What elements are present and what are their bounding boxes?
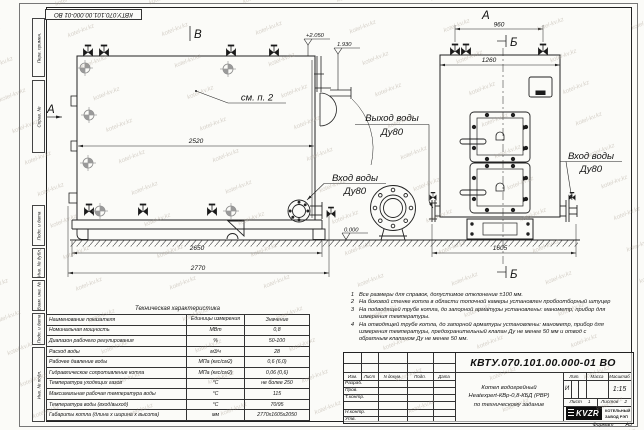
stamp-row-label: Пров.	[345, 387, 377, 394]
valve-icon	[539, 45, 548, 56]
dim-label: 1260	[482, 57, 497, 64]
note-number: 4	[346, 322, 359, 344]
control-panel	[529, 77, 552, 97]
dim-2520: 2520	[78, 138, 314, 146]
boiler-body-front	[440, 55, 560, 217]
note-item: 4 На отводящей трубе котла, до запорной …	[346, 322, 613, 344]
elevation-marks: +2.050 1.930 0.000	[304, 33, 368, 240]
param-name: Рабочее давление воды	[47, 357, 187, 368]
elevation-label: +2.050	[306, 33, 325, 39]
drain-valve-icon	[208, 205, 217, 216]
product-title-line: Котел водогрейный	[481, 384, 536, 392]
tech-table: Наименование показателя Единицы измерени…	[46, 314, 310, 421]
logo-cell: KVZR КОТЕЛЬНЫЙ ЗАВОД РЭП	[563, 406, 634, 421]
param-value: 115	[245, 389, 310, 400]
param-name: Гидравлическое сопротивление котла	[47, 367, 187, 378]
callout-label: Ду80	[343, 186, 367, 197]
callout-label: см. п. 2	[241, 93, 274, 104]
tech-table-header-row: Наименование показателя Единицы измерени…	[47, 315, 310, 326]
valve-icon	[462, 45, 471, 56]
param-name: Номинальная мощность	[47, 325, 187, 336]
door-swing-arc	[352, 99, 373, 165]
door-handle	[460, 139, 486, 144]
tap-valve-icon	[430, 193, 436, 201]
callout-label: Вход воды	[332, 173, 378, 184]
param-name: Габариты котла (длина х ширина х высота)	[47, 410, 187, 421]
drawing-sheet: kotel-kv.kz kotel-kv.kz kotel-kv.kz kote…	[0, 0, 644, 430]
drain-valve-icon	[85, 205, 94, 216]
table-row: Рабочее давление водыМПа (кгс/см2)0,6 (6…	[47, 357, 310, 368]
param-unit: МПа (кгс/см2)	[187, 367, 245, 378]
param-unit: мм	[187, 410, 245, 421]
center-mark-icon	[223, 203, 239, 219]
note-text: На отводящей трубе котла, до запорной ар…	[359, 322, 613, 344]
kvzr-logo: KVZR	[566, 407, 602, 420]
stamp-row-label: Утв.	[345, 416, 377, 423]
dim-label: 2650	[189, 245, 205, 252]
param-value: 0,8	[245, 325, 310, 336]
callouts: см. п. 2 Выход воды Ду80 Вход воды Ду80 …	[195, 90, 622, 208]
scale-header: Масштаб	[608, 372, 631, 380]
center-mark-icon	[92, 203, 108, 219]
callout-water-outlet: Выход воды Ду80	[355, 113, 433, 208]
flue-duct-arc	[320, 93, 337, 126]
table-row: Гидравлическое сопротивление котлаМПа (к…	[47, 367, 310, 378]
hinge-tab	[71, 96, 77, 106]
notes-list: 1 Все размеры для справок, допустимое от…	[346, 292, 613, 344]
valve-icon	[451, 45, 460, 56]
sheet-label: Лист	[569, 400, 581, 405]
upper-door	[460, 112, 530, 162]
table-row: Диапазон рабочего регулирования%50-100	[47, 336, 310, 347]
center-mark-icon	[220, 61, 236, 77]
elevation-label: 0.000	[344, 228, 359, 234]
tech-table-title: Техническая характеристика	[46, 306, 309, 312]
table-row: Номинальная мощностьМВт0,8	[47, 325, 310, 336]
note-text: На боковой стенке котла в области топочн…	[359, 299, 613, 306]
valve-icon	[227, 46, 236, 57]
param-value: 28	[245, 346, 310, 357]
stamp-row-label: Н.контр.	[345, 409, 377, 416]
door-handle	[460, 190, 486, 195]
param-name: Диапазон рабочего регулирования	[47, 336, 187, 347]
logo-text: KVZR	[576, 409, 599, 418]
param-name: Температура уходящих газов	[47, 378, 187, 389]
logo-subtitle-line: КОТЕЛЬНЫЙ	[605, 408, 630, 413]
dim-label: 960	[494, 22, 505, 29]
param-unit: °С	[187, 389, 245, 400]
logo-stripe-icon	[568, 409, 574, 418]
lower-door	[460, 163, 530, 213]
rev-col-header: Лист	[361, 372, 378, 380]
table-row: Температура уходящих газов°Сне более 250	[47, 378, 310, 389]
logo-subtitle: КОТЕЛЬНЫЙ ЗАВОД РЭП	[605, 408, 630, 418]
view-label-a-left: А	[46, 104, 55, 116]
doc-number: КВТУ.070.101.00.000-01 ВО	[455, 353, 631, 372]
product-title-line: Heatexpert-КВр-0,8-КБД (РВР)	[469, 392, 550, 400]
param-value: 0,6 (6,0)	[245, 357, 310, 368]
stamp-row-label: Т.контр.	[345, 394, 377, 401]
elevation-mid: 1.930	[334, 42, 360, 90]
elevation-top: +2.050	[304, 33, 330, 56]
logo-subtitle-line: ЗАВОД РЭП	[605, 414, 630, 419]
param-name: Максимальная рабочая температура воды	[47, 389, 187, 400]
param-unit: м3/ч	[187, 346, 245, 357]
param-value: 2770х1605х2050	[245, 410, 310, 421]
boiler-side-view	[69, 46, 373, 240]
section-mark-b-bottom: Б	[510, 269, 518, 281]
sheets-label: Листов	[601, 400, 618, 405]
param-unit: °С	[187, 399, 245, 410]
callout-label: Вход воды	[568, 151, 614, 162]
table-row: Расход водым3/ч28	[47, 346, 310, 357]
note-number: 3	[346, 307, 359, 322]
col-header: Значение	[245, 315, 310, 326]
valve-icon	[270, 46, 279, 57]
param-unit: °С	[187, 378, 245, 389]
boiler-front-view	[429, 45, 577, 265]
rev-col-header: Подп.	[407, 372, 433, 380]
dim-960: 960	[455, 22, 543, 43]
boiler-base-side	[72, 220, 325, 240]
callout-label: Ду80	[579, 164, 603, 175]
section-mark-b-top: Б	[510, 37, 518, 49]
inlet-flange-front	[560, 200, 577, 222]
table-row: Максимальная рабочая температура воды°С1…	[47, 389, 310, 400]
stamp-row-label	[345, 401, 377, 409]
col-header: Наименование показателя	[47, 315, 187, 326]
rev-col-header: Дата	[433, 372, 455, 380]
note-item: 3 На подводящей трубе котла, до запорной…	[346, 307, 613, 322]
rev-col-header: N докум.	[378, 372, 407, 380]
param-value: 50-100	[245, 336, 310, 347]
pipe-flange-face	[371, 186, 416, 241]
callout-label: Ду80	[380, 127, 404, 138]
col-header: Единицы измерения	[187, 315, 245, 326]
callout-water-inlet-front: Вход воды Ду80	[560, 151, 622, 200]
elevation-ground: 0.000	[342, 228, 368, 240]
note-text: На подводящей трубе котла, до запорной а…	[359, 307, 613, 322]
table-row: Габариты котла (длина х ширина х высота)…	[47, 410, 310, 421]
rev-col-header: Изм.	[344, 372, 361, 380]
callout-label: Выход воды	[365, 113, 418, 124]
valve-icon	[84, 46, 93, 57]
note-item: 2 На боковой стенке котла в области топо…	[346, 299, 613, 306]
lit-header: Лит.	[563, 372, 586, 380]
product-title: Котел водогрейный Heatexpert-КВр-0,8-КБД…	[455, 372, 563, 421]
dim-label: 2770	[190, 265, 206, 272]
dim-1260: 1260	[440, 57, 560, 69]
param-value: не более 250	[245, 378, 310, 389]
view-label-b: В	[194, 29, 202, 41]
param-unit: МВт	[187, 325, 245, 336]
drain-valve-icon	[139, 205, 148, 216]
dim-label: 2520	[188, 138, 204, 145]
boiler-base-front	[467, 219, 533, 239]
sheet-cell: Лист 1	[563, 398, 597, 406]
hinge-tab	[71, 141, 77, 151]
sheet-value: 1	[588, 400, 591, 405]
elevation-label: 1.930	[337, 42, 352, 48]
callout-see-note: см. п. 2	[195, 90, 286, 104]
title-block: КВТУ.070.101.00.000-01 ВО Котел водогрей…	[343, 352, 634, 424]
table-row: Температура воды (вход/выход)°С70/95	[47, 399, 310, 410]
inlet-valve-icon	[327, 208, 335, 218]
flue-assembly	[314, 56, 373, 165]
center-mark-icon	[77, 60, 93, 76]
view-label-a-right: А	[481, 10, 490, 22]
note-number: 2	[346, 299, 359, 306]
stamp-row-label: Разраб.	[345, 380, 377, 387]
param-name: Температура воды (вход/выход)	[47, 399, 187, 410]
sheets-cell: Листов 2	[597, 398, 631, 406]
note-number: 1	[346, 292, 359, 299]
param-unit: МПа (кгс/см2)	[187, 357, 245, 368]
inlet-flange-side	[288, 200, 322, 222]
param-value: 70/95	[245, 399, 310, 410]
center-mark-icon	[80, 155, 96, 171]
sheets-value: 2	[624, 400, 627, 405]
mass-header: Масса	[586, 372, 608, 380]
litera-value: И	[563, 380, 571, 398]
valve-icon	[100, 46, 109, 57]
scale-value: 1:15	[608, 380, 631, 398]
param-value: 0,06 (0,6)	[245, 367, 310, 378]
param-name: Расход воды	[47, 346, 187, 357]
center-mark-icon	[81, 107, 97, 123]
param-unit: %	[187, 336, 245, 347]
product-title-line: по техническому задание	[474, 401, 545, 409]
hinge-tab	[69, 193, 77, 203]
dim-label: 1605	[493, 245, 508, 252]
